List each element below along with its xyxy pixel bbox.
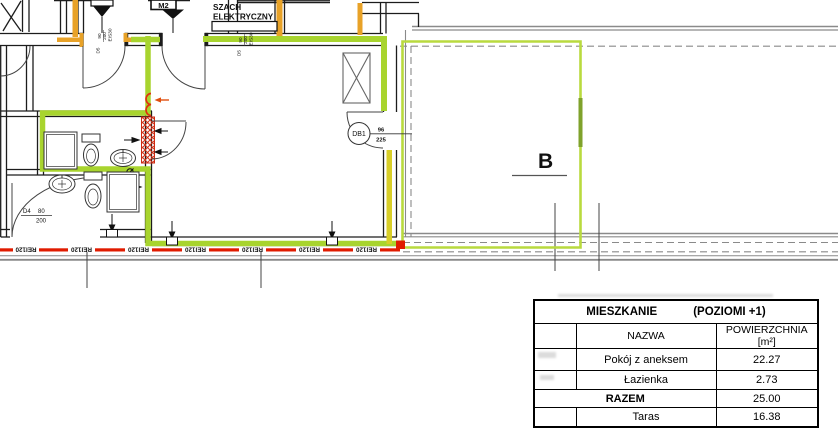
total-value-cell: 25.00 bbox=[716, 390, 818, 408]
room-area-cell: 16.38 bbox=[716, 408, 818, 428]
door-d4-width: 80 bbox=[38, 209, 45, 215]
terrace-label: B bbox=[538, 150, 553, 173]
fire-rating-label: REI120 bbox=[71, 246, 93, 253]
room-name-cell: Taras bbox=[576, 408, 716, 428]
door-d4-id: D4 bbox=[23, 209, 31, 215]
fire-rating-label: REI120 bbox=[242, 246, 264, 253]
toilet-icon bbox=[84, 172, 102, 208]
room-area-cell: 22.27 bbox=[716, 349, 818, 371]
table-header-row: NAZWA POWIERZCHNIA [m²] bbox=[534, 324, 818, 349]
balcony-door-height: 225 bbox=[376, 138, 386, 144]
fire-rating-label: REI120 bbox=[128, 246, 150, 253]
room-name-cell: Pokój z aneksem bbox=[576, 349, 716, 371]
shaft-label-line2: ELEKTRYCZNY bbox=[213, 13, 274, 22]
shaft-label-line1: SZACH bbox=[213, 3, 241, 12]
riser-label: M2 bbox=[158, 1, 168, 10]
door-d4-label: D4 80 200 bbox=[21, 209, 52, 225]
table-row: Taras 16.38 bbox=[534, 408, 818, 428]
door-d5-height: 200 bbox=[243, 36, 248, 44]
door-d5-height: 200 bbox=[102, 32, 107, 40]
door-d5-id: D5 bbox=[96, 47, 101, 53]
fire-rating-label: REI120 bbox=[299, 246, 321, 253]
table-title-row: MIESZKANIE (POZIOMI +1) bbox=[534, 300, 818, 324]
fire-rating-label: REI120 bbox=[356, 246, 378, 253]
floor-plan-page: REI120 REI120 REI120 REI120 REI120 REI12… bbox=[0, 0, 838, 443]
electrical-shaft-label: SZACH ELEKTRYCZNY bbox=[212, 3, 277, 31]
table-row: Pokój z aneksem 22.27 bbox=[534, 349, 818, 371]
empty-cell bbox=[534, 324, 576, 349]
door-d5-rating: EIS30 bbox=[108, 28, 114, 41]
shaft-x-box bbox=[343, 53, 370, 103]
vent-chute-symbols: M2 bbox=[91, 0, 184, 33]
apartment-area-table: MIESZKANIE (POZIOMI +1) NAZWA POWIERZCHN… bbox=[533, 299, 819, 428]
door-d5-right-label: 90 200 EIS30 D5 bbox=[237, 32, 255, 56]
balcony-door-id: DB1 bbox=[352, 131, 366, 138]
door-d5-rating: EIS30 bbox=[249, 32, 255, 45]
sink-icon bbox=[111, 150, 136, 167]
shower-tray-icon bbox=[44, 132, 77, 169]
scan-artifact bbox=[558, 294, 773, 297]
terrace-boundary-lines bbox=[0, 27, 838, 260]
table-title: MIESZKANIE bbox=[586, 306, 657, 318]
beam-yellow-highlight bbox=[387, 150, 393, 244]
door-d5-id: D5 bbox=[237, 50, 242, 56]
total-label-cell: RAZEM bbox=[534, 390, 716, 408]
room-name-cell: Łazienka bbox=[576, 371, 716, 390]
column-header-area: POWIERZCHNIA [m²] bbox=[716, 324, 818, 349]
table-row: Łazienka 2.73 bbox=[534, 371, 818, 390]
sink-icon bbox=[49, 175, 75, 193]
door-d4-height: 200 bbox=[36, 219, 47, 225]
scan-artifact bbox=[538, 352, 556, 358]
balcony-door-width: 96 bbox=[378, 128, 385, 134]
column-header-name: NAZWA bbox=[576, 324, 716, 349]
empty-cell bbox=[534, 408, 576, 428]
table-subtitle: (POZIOMI +1) bbox=[693, 306, 766, 318]
scan-artifact bbox=[540, 375, 554, 380]
terrace-green-outline bbox=[403, 42, 581, 248]
fire-rating-label: REI120 bbox=[185, 246, 207, 253]
fire-rating-label: REI120 bbox=[15, 246, 37, 253]
door-d5-left-label: 90 200 EIS30 D5 bbox=[96, 28, 114, 53]
terrace-label-group: B bbox=[512, 150, 567, 176]
toilet-icon bbox=[82, 134, 100, 166]
table-total-row: RAZEM 25.00 bbox=[534, 390, 818, 408]
empty-cell bbox=[534, 371, 576, 390]
shower-tray-icon bbox=[107, 172, 139, 212]
room-area-cell: 2.73 bbox=[716, 371, 818, 390]
bathroom-fixtures bbox=[44, 132, 139, 212]
